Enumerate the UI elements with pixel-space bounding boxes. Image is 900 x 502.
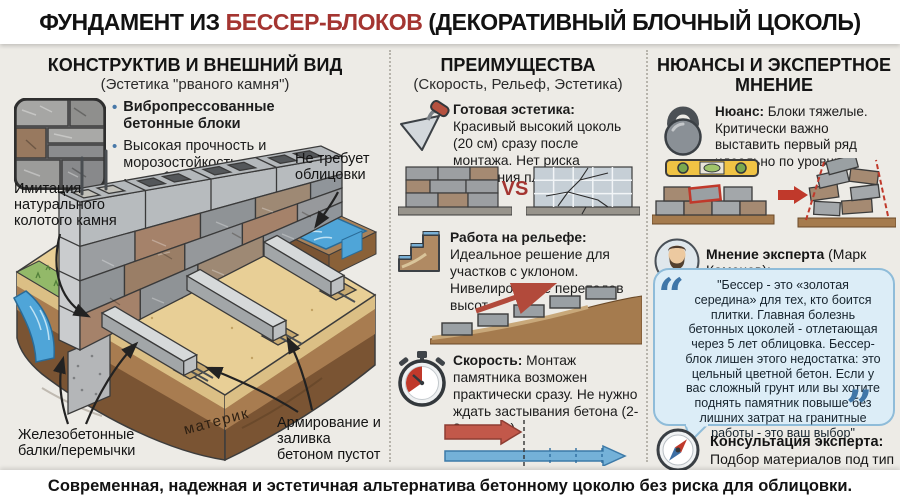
label-beams: Железобетонные балки/перемычки bbox=[18, 428, 168, 460]
kettlebell-icon bbox=[658, 100, 708, 156]
terrain-steps-icon bbox=[396, 228, 442, 274]
spirit-level bbox=[666, 160, 758, 176]
cracked-tile-wall-illustration bbox=[526, 166, 640, 216]
consultation-label: Консультация эксперта: bbox=[710, 433, 900, 451]
close-quote-icon: ” bbox=[846, 384, 872, 430]
column-divider-left bbox=[389, 50, 391, 462]
page-title: ФУНДАМЕНТ ИЗ БЕССЕР-БЛОКОВ (ДЕКОРАТИВНЫЙ… bbox=[39, 9, 860, 36]
title-prefix: ФУНДАМЕНТ ИЗ bbox=[39, 9, 225, 35]
open-quote-icon: “ bbox=[658, 272, 684, 318]
left-column-subtitle: (Эстетика "рваного камня") bbox=[6, 76, 384, 93]
speed-comparison-arrows bbox=[443, 420, 643, 466]
footer-bar: Современная, надежная и эстетичная альте… bbox=[0, 470, 900, 502]
list-item: •Вибропрессованные бетонные блоки bbox=[112, 99, 307, 134]
header-bar: ФУНДАМЕНТ ИЗ БЕССЕР-БЛОКОВ (ДЕКОРАТИВНЫЙ… bbox=[0, 0, 900, 44]
left-column-title: КОНСТРУКТИВ И ВНЕШНИЙ ВИД bbox=[6, 55, 384, 75]
label-no-cladding: Не требует облицовки bbox=[295, 152, 383, 184]
middle-column-title: ПРЕИМУЩЕСТВА bbox=[392, 55, 644, 75]
infographic: ФУНДАМЕНТ ИЗ БЕССЕР-БЛОКОВ (ДЕКОРАТИВНЫЙ… bbox=[0, 0, 900, 502]
nuance-label: Нюанс: bbox=[715, 104, 764, 119]
footer-text: Современная, надежная и эстетичная альте… bbox=[48, 477, 852, 496]
slope-steps-illustration bbox=[430, 283, 642, 345]
feature-label: Работа на рельефе: bbox=[450, 230, 587, 245]
trowel-icon bbox=[398, 100, 450, 156]
title-suffix: (ДЕКОРАТИВНЫЙ БЛОЧНЫЙ ЦОКОЛЬ) bbox=[422, 9, 860, 35]
column-divider-right bbox=[646, 50, 648, 462]
stopwatch-icon bbox=[396, 350, 448, 408]
feature-label: Готовая эстетика: bbox=[453, 102, 575, 117]
bullet-dot-icon: • bbox=[112, 99, 117, 134]
middle-column-subtitle: (Скорость, Рельеф, Эстетика) bbox=[392, 76, 644, 93]
right-column-title: НЮАНСЫ И ЭКСПЕРТНОЕ МНЕНИЕ bbox=[652, 55, 896, 95]
expert-label: Мнение эксперта bbox=[706, 246, 824, 262]
leveling-blocks-illustration bbox=[652, 158, 896, 230]
title-highlight: БЕССЕР-БЛОКОВ bbox=[226, 9, 423, 35]
bullet-text: Вибропрессованные бетонные блоки bbox=[123, 99, 307, 134]
label-reinforcement: Армирование и заливка бетоном пустот bbox=[277, 416, 389, 464]
label-stone-imitation: Имитация натурального колотого камня bbox=[14, 182, 136, 230]
feature-label: Скорость: bbox=[453, 353, 522, 368]
block-wall-illustration bbox=[398, 166, 512, 216]
compass-icon bbox=[656, 428, 700, 472]
